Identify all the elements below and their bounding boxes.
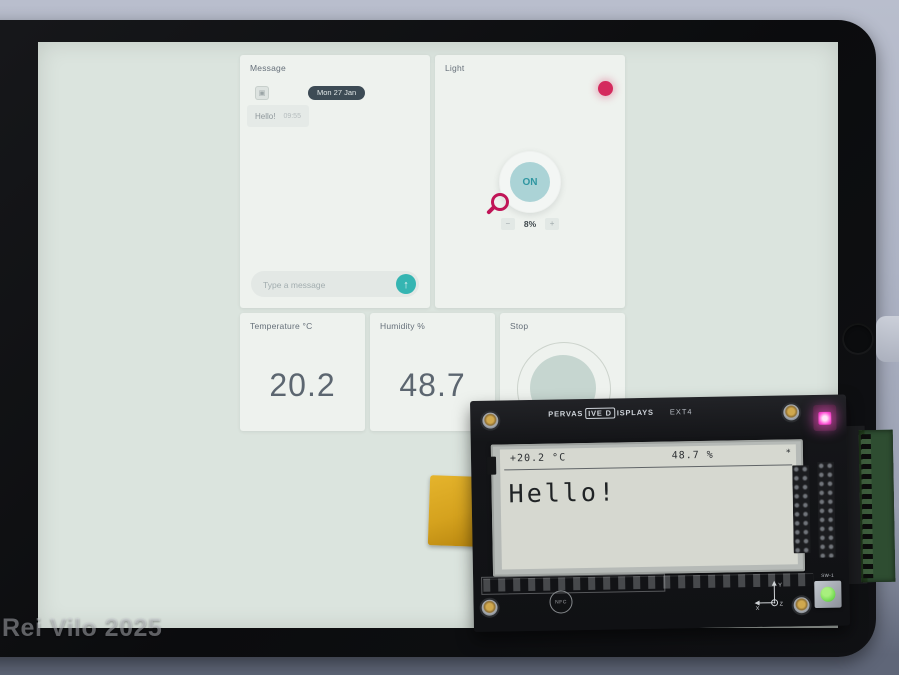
epaper-display: +20.2 °C 48.7 % * Hello! [491,439,805,576]
epd-message-text: Hello! [508,477,617,508]
screw-top-right [783,404,799,420]
edge-connector-pcb [859,430,896,583]
message-bubble-text: Hello! [255,112,275,121]
board-model-label: EXT4 [670,407,693,416]
pin-header-left [792,465,811,553]
widget-light: Light ON − 8% + [435,55,625,308]
board-silkscreen-brand: PERVAS IVE D ISPLAYS EXT4 [548,406,692,420]
message-input[interactable] [261,271,385,299]
epd-divider-line [504,464,792,470]
pcb-comb-frame [481,574,665,595]
humidity-widget-title: Humidity % [380,321,425,331]
light-knob-state[interactable]: ON [510,162,550,202]
axis-orientation-icon: Y X Z [749,578,786,615]
svg-text:X: X [756,606,760,612]
widget-message: Message ▣ Mon 27 Jan Hello! 09:55 ↑ [240,55,430,308]
pin-header-right [817,462,836,558]
home-button [842,323,874,355]
light-widget-title: Light [445,63,464,73]
stop-widget-title: Stop [510,321,528,331]
widget-temperature: Temperature °C 20.2 [240,313,365,431]
date-separator-badge: Mon 27 Jan [308,86,365,100]
ext4-board: PERVAS IVE D ISPLAYS EXT4 +20.2 °C 48.7 … [470,394,850,632]
epd-connector-tab [487,457,496,475]
step-up-button[interactable]: + [545,218,559,230]
screw-top-left [482,413,498,429]
cursor-magnifier-icon [491,193,509,211]
watermark: Rei Vilo 2025 [2,614,162,643]
message-bubble: Hello! 09:55 [247,105,309,127]
arrow-up-icon: ↑ [403,279,409,291]
screw-bottom-left [481,600,497,616]
epd-active-area: +20.2 °C 48.7 % * Hello! [500,444,798,569]
message-bubble-time: 09:55 [283,113,301,120]
brand-left: PERVAS [548,409,583,419]
screw-bottom-right [793,597,809,613]
epd-humidity-readout: 48.7 % [672,450,714,462]
epd-temperature-readout: +20.2 °C [510,452,566,464]
device-avatar-icon: ▣ [255,86,269,100]
brand-boxed: IVE D [585,407,615,419]
switch-label: SW-1 [814,573,841,578]
cable-connector [876,316,899,362]
light-stepper: − 8% + [435,218,625,230]
connector-pins [861,434,874,578]
svg-text:Z: Z [780,602,784,608]
temperature-value: 20.2 [240,367,365,404]
rgb-led-module [813,405,836,431]
epd-flag-glyph: * [785,448,791,458]
rgb-led-glow [818,411,831,424]
step-down-button[interactable]: − [501,218,515,230]
svg-text:Y: Y [778,583,782,589]
tactile-switch [814,581,841,608]
send-button[interactable]: ↑ [396,274,416,294]
humidity-value: 48.7 [370,367,495,404]
temperature-widget-title: Temperature °C [250,321,312,331]
message-widget-title: Message [250,63,286,73]
record-led-indicator [598,81,613,96]
tactile-switch-cap [820,587,835,602]
photo-scene: Message ▣ Mon 27 Jan Hello! 09:55 ↑ Ligh… [0,0,899,675]
message-input-row: ↑ [251,271,419,297]
nfc-logo: NFC [549,590,572,613]
light-value: 8% [524,219,536,229]
brand-right: ISPLAYS [617,408,654,418]
